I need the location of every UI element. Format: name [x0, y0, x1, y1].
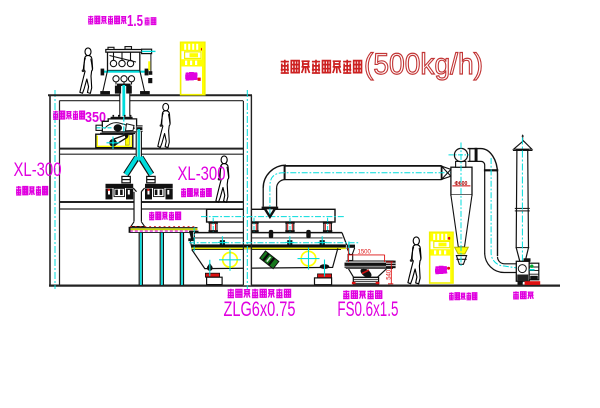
svg-text:XL-300: XL-300 — [14, 160, 62, 181]
svg-text:FS0.6x1.5: FS0.6x1.5 — [337, 298, 398, 321]
svg-text:ZLG6x0.75: ZLG6x0.75 — [224, 298, 296, 321]
svg-text:1.5: 1.5 — [127, 13, 143, 30]
svg-text:540: 540 — [387, 269, 393, 280]
svg-text:XL-300: XL-300 — [178, 164, 226, 185]
svg-text:(500kg/h): (500kg/h) — [364, 48, 483, 81]
svg-text:1500: 1500 — [358, 250, 372, 256]
